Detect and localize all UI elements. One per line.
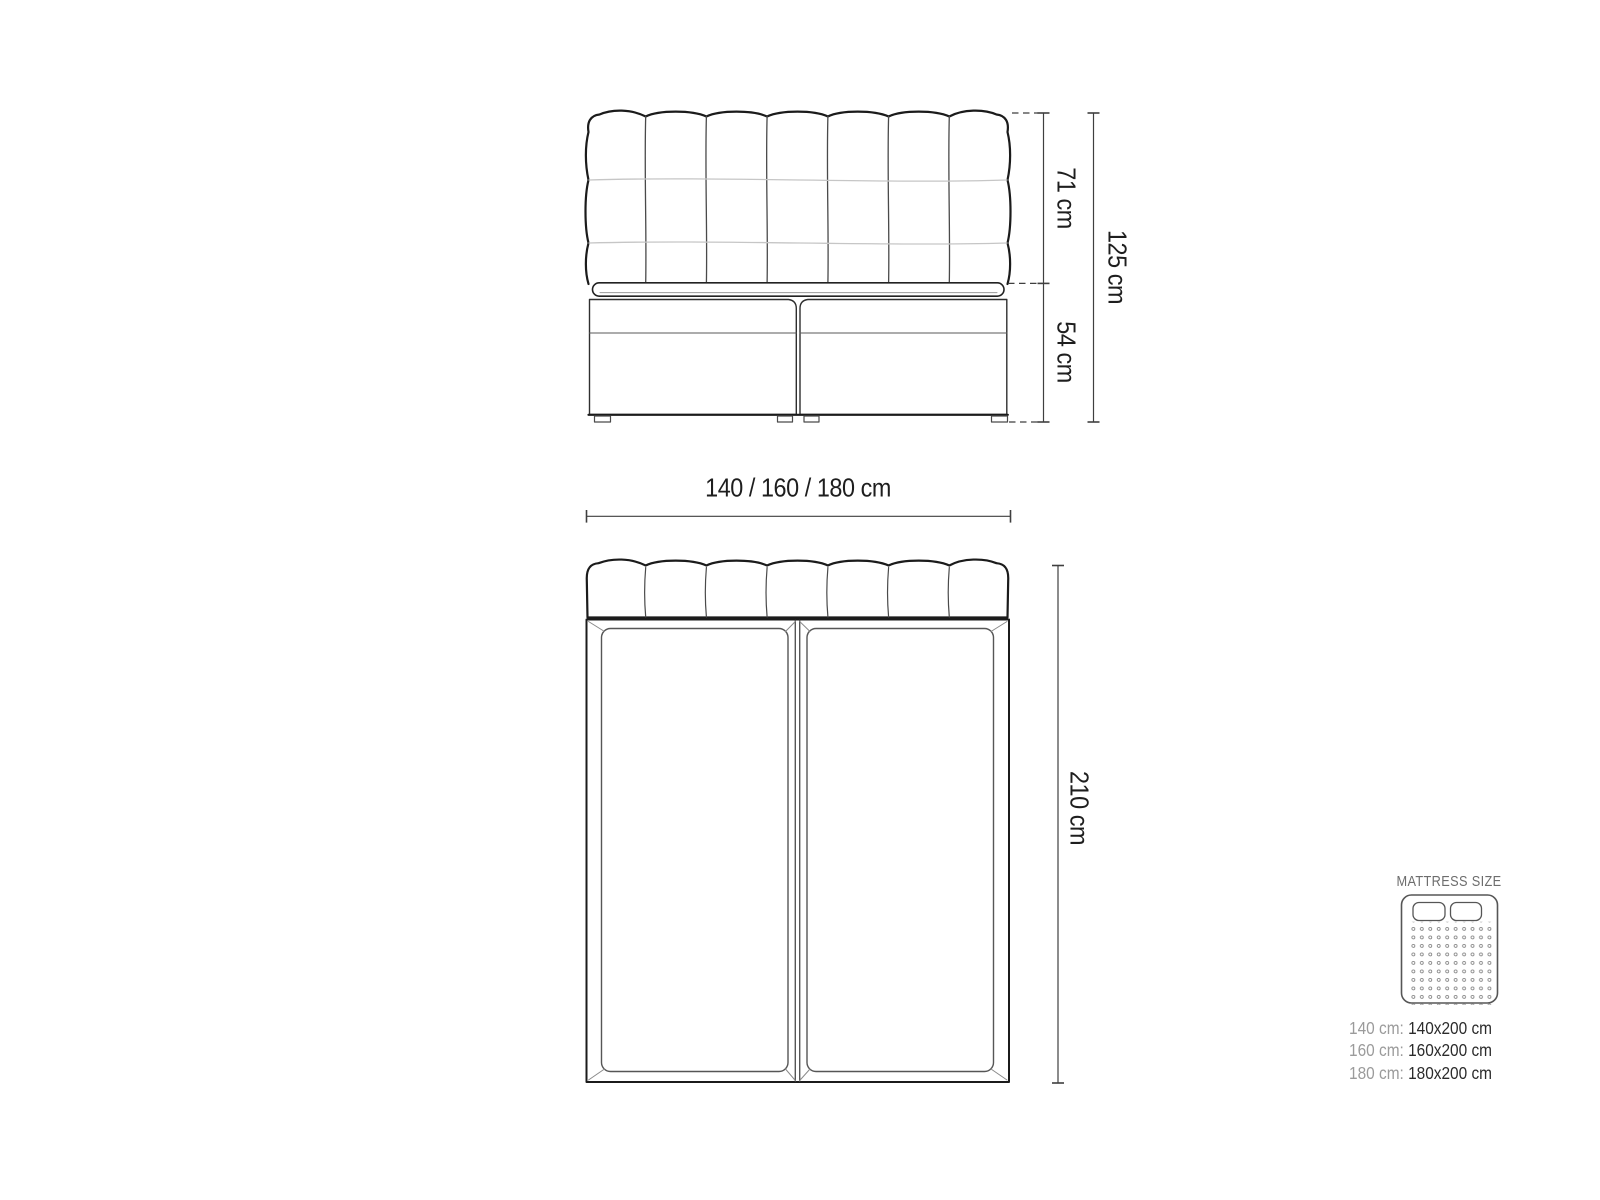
dimension-line-125 [1088, 113, 1100, 422]
mattress-size-title: MATTRESS SIZE [1396, 874, 1501, 890]
headboard-top-seams [645, 568, 950, 618]
mattress-panels [602, 621, 994, 1082]
dimension-line-71-54 [1038, 113, 1050, 422]
pillow-right-icon [1451, 903, 1482, 921]
size-option-value: 140x200 cm [1408, 1018, 1492, 1038]
bed-front-view [586, 111, 1011, 422]
quilting-dots [1411, 922, 1493, 1005]
size-option-value: 160x200 cm [1408, 1040, 1492, 1060]
panel-corner-chamfers [589, 622, 1008, 1081]
bed-dimension-diagram: 71 cm 54 cm 125 cm 140 / 160 / 180 cm 21… [0, 0, 1600, 1200]
mattress-size-row: 160 cm: 160x200 cm [1316, 1039, 1492, 1061]
width-dimension-line [587, 510, 1011, 523]
size-option-value: 180x200 cm [1408, 1063, 1492, 1083]
length-dimension-line [1052, 566, 1064, 1084]
dim-label-headboard-height: 71 cm [1051, 167, 1082, 228]
pillow-left-icon [1413, 903, 1445, 921]
size-option-label: 160 cm: [1349, 1040, 1404, 1060]
extension-dashes [1008, 113, 1038, 422]
size-option-label: 140 cm: [1349, 1018, 1404, 1038]
mattress-bar [593, 283, 1005, 296]
headboard-tufting-columns [645, 117, 949, 284]
bed-top-view [587, 560, 1010, 1082]
mattress-size-table: 140 cm: 140x200 cm 160 cm: 160x200 cm 18… [1316, 1017, 1492, 1084]
dim-label-total-height: 125 cm [1102, 230, 1133, 304]
bed-base [589, 300, 1008, 415]
dim-label-length: 210 cm [1064, 771, 1095, 845]
bed-frame-outline [587, 620, 1010, 1083]
size-option-label: 180 cm: [1349, 1063, 1404, 1083]
dim-label-base-height: 54 cm [1051, 321, 1082, 382]
mattress-size-row: 180 cm: 180x200 cm [1316, 1062, 1492, 1084]
headboard-tufting-rows [589, 179, 1007, 244]
headboard-outline [586, 111, 1011, 284]
headboard-top-outline [587, 560, 1008, 618]
mattress-size-row: 140 cm: 140x200 cm [1316, 1017, 1492, 1039]
dim-label-width-options: 140 / 160 / 180 cm [705, 473, 891, 504]
bed-feet [595, 416, 1008, 422]
mattress-size-icon [1402, 895, 1498, 1005]
